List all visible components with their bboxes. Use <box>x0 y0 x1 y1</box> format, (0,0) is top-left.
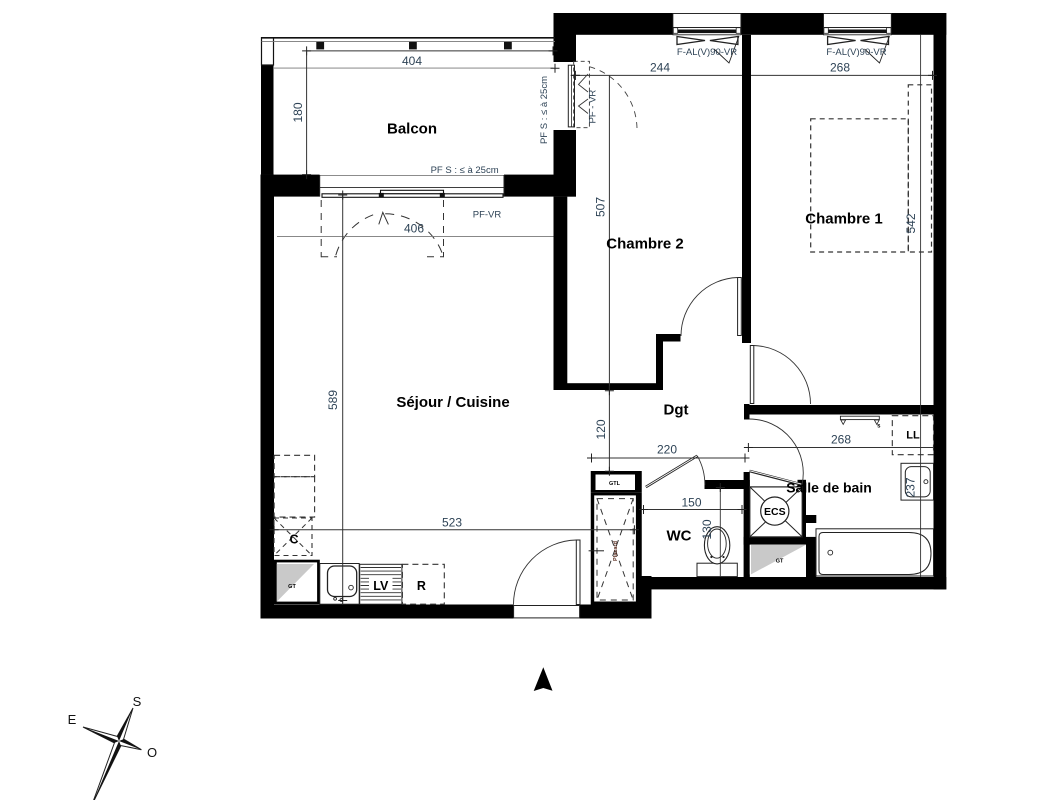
svg-text:LV: LV <box>373 579 389 593</box>
svg-text:S: S <box>133 694 142 709</box>
svg-text:268: 268 <box>830 61 850 75</box>
svg-text:Placard: Placard <box>613 541 619 561</box>
svg-text:E: E <box>68 712 77 727</box>
svg-text:F-AL(V)90-VR: F-AL(V)90-VR <box>677 47 737 58</box>
svg-text:WC: WC <box>667 528 692 545</box>
svg-text:GT: GT <box>776 559 784 565</box>
svg-text:130: 130 <box>700 519 714 539</box>
svg-text:120: 120 <box>594 419 608 439</box>
svg-text:Balcon: Balcon <box>387 121 437 138</box>
svg-text:GTL: GTL <box>609 481 621 487</box>
svg-text:507: 507 <box>594 197 608 217</box>
svg-text:GT: GT <box>288 584 296 590</box>
svg-text:PF - VR: PF - VR <box>588 90 599 124</box>
svg-text:150: 150 <box>681 496 701 510</box>
svg-text:Salle de bain: Salle de bain <box>786 480 872 496</box>
svg-text:542: 542 <box>904 213 918 233</box>
svg-text:C: C <box>289 533 298 547</box>
svg-text:220: 220 <box>657 443 677 457</box>
svg-text:523: 523 <box>442 516 462 530</box>
svg-text:Chambre 1: Chambre 1 <box>805 211 883 228</box>
svg-text:589: 589 <box>326 390 340 410</box>
svg-text:ECS: ECS <box>764 506 786 518</box>
svg-text:LL: LL <box>906 430 920 442</box>
svg-text:Dgt: Dgt <box>664 402 689 419</box>
svg-text:406: 406 <box>404 222 424 236</box>
svg-text:404: 404 <box>402 54 422 68</box>
svg-text:244: 244 <box>650 61 670 75</box>
svg-text:PF S : ≤ à 25cm: PF S : ≤ à 25cm <box>539 76 550 144</box>
svg-text:F-AL(V)90-VR: F-AL(V)90-VR <box>826 47 886 58</box>
svg-text:237: 237 <box>904 477 918 497</box>
svg-text:Séjour / Cuisine: Séjour / Cuisine <box>396 394 509 411</box>
svg-text:R: R <box>417 579 426 593</box>
svg-text:O: O <box>147 745 157 760</box>
svg-text:Chambre 2: Chambre 2 <box>606 236 684 253</box>
svg-text:180: 180 <box>291 102 305 122</box>
svg-text:268: 268 <box>831 433 851 447</box>
svg-text:PF S : ≤ à 25cm: PF S : ≤ à 25cm <box>431 165 499 176</box>
svg-text:PF-VR: PF-VR <box>473 210 502 221</box>
